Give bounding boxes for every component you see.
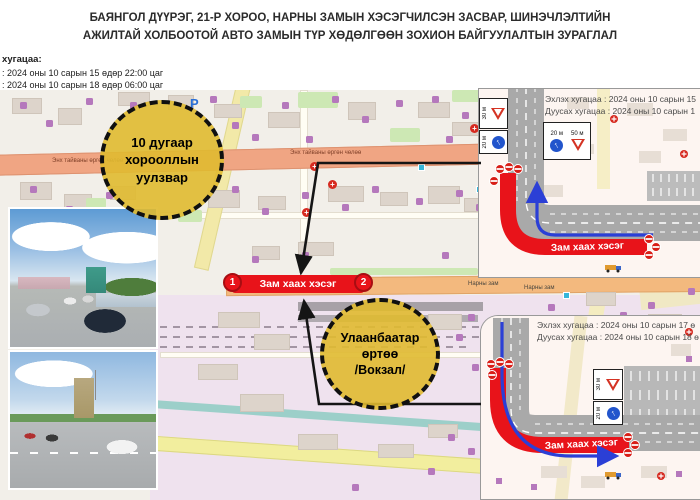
distance-label: 20 м <box>551 131 563 137</box>
shop-icon <box>472 364 479 371</box>
shop-icon <box>20 102 27 109</box>
schedule-label: хугацаа: <box>2 54 163 67</box>
sign-box-30m: 30 м <box>479 98 508 129</box>
green-area <box>240 96 262 108</box>
inset-schedule-south: Эхлэх хугацаа : 2024 оны 10 сарын 17 ө Д… <box>537 319 700 344</box>
callout-text: Улаанбаатар <box>341 330 420 346</box>
shop-icon <box>416 198 423 205</box>
shop-icon <box>372 186 379 193</box>
building <box>298 434 338 450</box>
shop-icon <box>442 252 449 259</box>
shop-icon <box>468 448 475 455</box>
street-photo-north <box>8 207 158 349</box>
transit-stop-icon <box>563 292 570 299</box>
hospital-icon <box>328 180 337 189</box>
yield-sign-icon <box>491 108 505 120</box>
sign-box-20m: 20 м <box>479 130 508 154</box>
shop-icon <box>548 304 555 311</box>
shop-icon <box>342 204 349 211</box>
mandatory-direction-sign-icon <box>492 136 505 149</box>
callout-text: 10 дугаар <box>131 134 193 152</box>
building <box>214 104 242 118</box>
shop-icon <box>396 100 403 107</box>
shop-icon <box>46 120 53 127</box>
sign-box-20m: 20 м <box>593 401 623 425</box>
detail-inset-south: Зам хаах хэсэг Эхлэх хугацаа <box>480 315 700 500</box>
schedule-start: : 2024 оны 10 сарын 15 өдөр 22:00 цаг <box>2 67 163 79</box>
building <box>586 292 616 306</box>
detail-inset-north: Зам хаах хэсэг Эхлэх хугацаа : 2024 оны … <box>478 88 700 278</box>
building <box>254 334 290 350</box>
shop-icon <box>210 96 217 103</box>
parking-lot <box>647 171 700 201</box>
distance-label: 20 м <box>596 407 602 419</box>
shop-icon <box>306 136 313 143</box>
sign-box-30m: 30 м <box>593 369 623 400</box>
inset-schedule-north: Эхлэх хугацаа : 2024 оны 10 сарын 15 Дуу… <box>545 93 700 118</box>
road-closure-segment: 1 Зам хаах хэсэг 2 <box>232 275 364 293</box>
shop-icon <box>30 186 37 193</box>
closure-label: Зам хаах хэсэг <box>232 275 364 293</box>
shop-icon <box>86 98 93 105</box>
closure-schedule: хугацаа: : 2024 оны 10 сарын 15 өдөр 22:… <box>2 54 163 91</box>
distance-label: 30 м <box>596 378 602 390</box>
shop-icon <box>252 134 259 141</box>
distance-label: 20 м <box>482 136 488 148</box>
mandatory-direction-sign-icon <box>607 407 620 420</box>
shop-icon <box>448 434 455 441</box>
shop-icon <box>446 136 453 143</box>
green-area <box>330 268 478 275</box>
building <box>418 102 450 118</box>
callout-railway-station: Улаанбаатар өртөө /Вокзал/ <box>320 298 440 410</box>
street-photo-south <box>8 350 158 490</box>
page-title-line1: БАЯНГОЛ ДҮҮРЭГ, 21-Р ХОРОО, НАРНЫ ЗАМЫН … <box>30 10 670 28</box>
shop-icon <box>302 252 309 259</box>
yield-sign-icon <box>606 379 620 391</box>
callout-text: хорооллын <box>125 151 199 169</box>
inset-start-time: Эхлэх хугацаа : 2024 оны 10 сарын 15 <box>545 93 700 105</box>
building <box>12 98 42 114</box>
shop-icon <box>302 192 309 199</box>
shop-icon <box>332 96 339 103</box>
building <box>218 312 260 328</box>
hospital-icon <box>302 208 311 217</box>
shop-icon <box>648 302 655 309</box>
road-label-narny-zam: Нарны зам <box>468 281 499 287</box>
distance-label: 50 м <box>571 131 583 137</box>
callout-text: өртөө <box>362 346 399 362</box>
sign-box-distances: 20 м 50 м <box>543 122 591 160</box>
traffic-plan-infographic: БАЯНГОЛ ДҮҮРЭГ, 21-Р ХОРОО, НАРНЫ ЗАМЫН … <box>0 0 700 500</box>
shop-icon <box>428 468 435 475</box>
shop-icon <box>282 102 289 109</box>
distance-label: 30 м <box>482 107 488 119</box>
shop-icon <box>362 116 369 123</box>
transit-stop-icon <box>418 164 425 171</box>
shop-icon <box>456 190 463 197</box>
shop-icon <box>262 208 269 215</box>
callout-text: /Вокзал/ <box>355 362 406 378</box>
shop-icon <box>352 484 359 491</box>
callout-text: уулзвар <box>136 169 188 187</box>
building <box>380 192 408 206</box>
inset-start-time: Эхлэх хугацаа : 2024 оны 10 сарын 17 ө <box>537 319 700 331</box>
shop-icon <box>688 288 695 295</box>
inset-end-time: Дуусах хугацаа : 2024 оны 10 сарын 18 ө <box>537 331 700 343</box>
building <box>198 364 238 380</box>
yield-sign-icon <box>571 139 585 151</box>
green-area <box>390 128 420 142</box>
shop-icon <box>252 256 259 263</box>
road-label-narny-zam: Нарны зам <box>524 285 555 291</box>
callout-10th-khoroolol-junction: 10 дугаар хорооллын уулзвар <box>100 100 224 220</box>
building <box>268 112 300 128</box>
inset-end-time: Дуусах хугацаа : 2024 оны 10 сарын 1 <box>545 105 700 117</box>
shop-icon <box>232 122 239 129</box>
mandatory-direction-sign-icon <box>550 139 563 152</box>
building <box>240 394 284 412</box>
hospital-icon <box>310 162 319 171</box>
building <box>378 444 414 458</box>
building <box>58 108 82 125</box>
shop-icon <box>432 96 439 103</box>
shop-icon <box>232 186 239 193</box>
closure-endpoint-2: 2 <box>354 273 373 292</box>
parking-lot <box>624 366 700 422</box>
shop-icon <box>462 112 469 119</box>
shop-icon <box>468 314 475 321</box>
road-label-peace-avenue: Энх тайваны өргөн чөлөө <box>290 150 361 156</box>
shop-icon <box>456 334 463 341</box>
page-title-line2: АЖИЛТАЙ ХОЛБООТОЙ АВТО ЗАМЫН ТҮР ХӨДӨЛГӨ… <box>30 28 670 46</box>
page-title: БАЯНГОЛ ДҮҮРЭГ, 21-Р ХОРОО, НАРНЫ ЗАМЫН … <box>30 10 670 46</box>
